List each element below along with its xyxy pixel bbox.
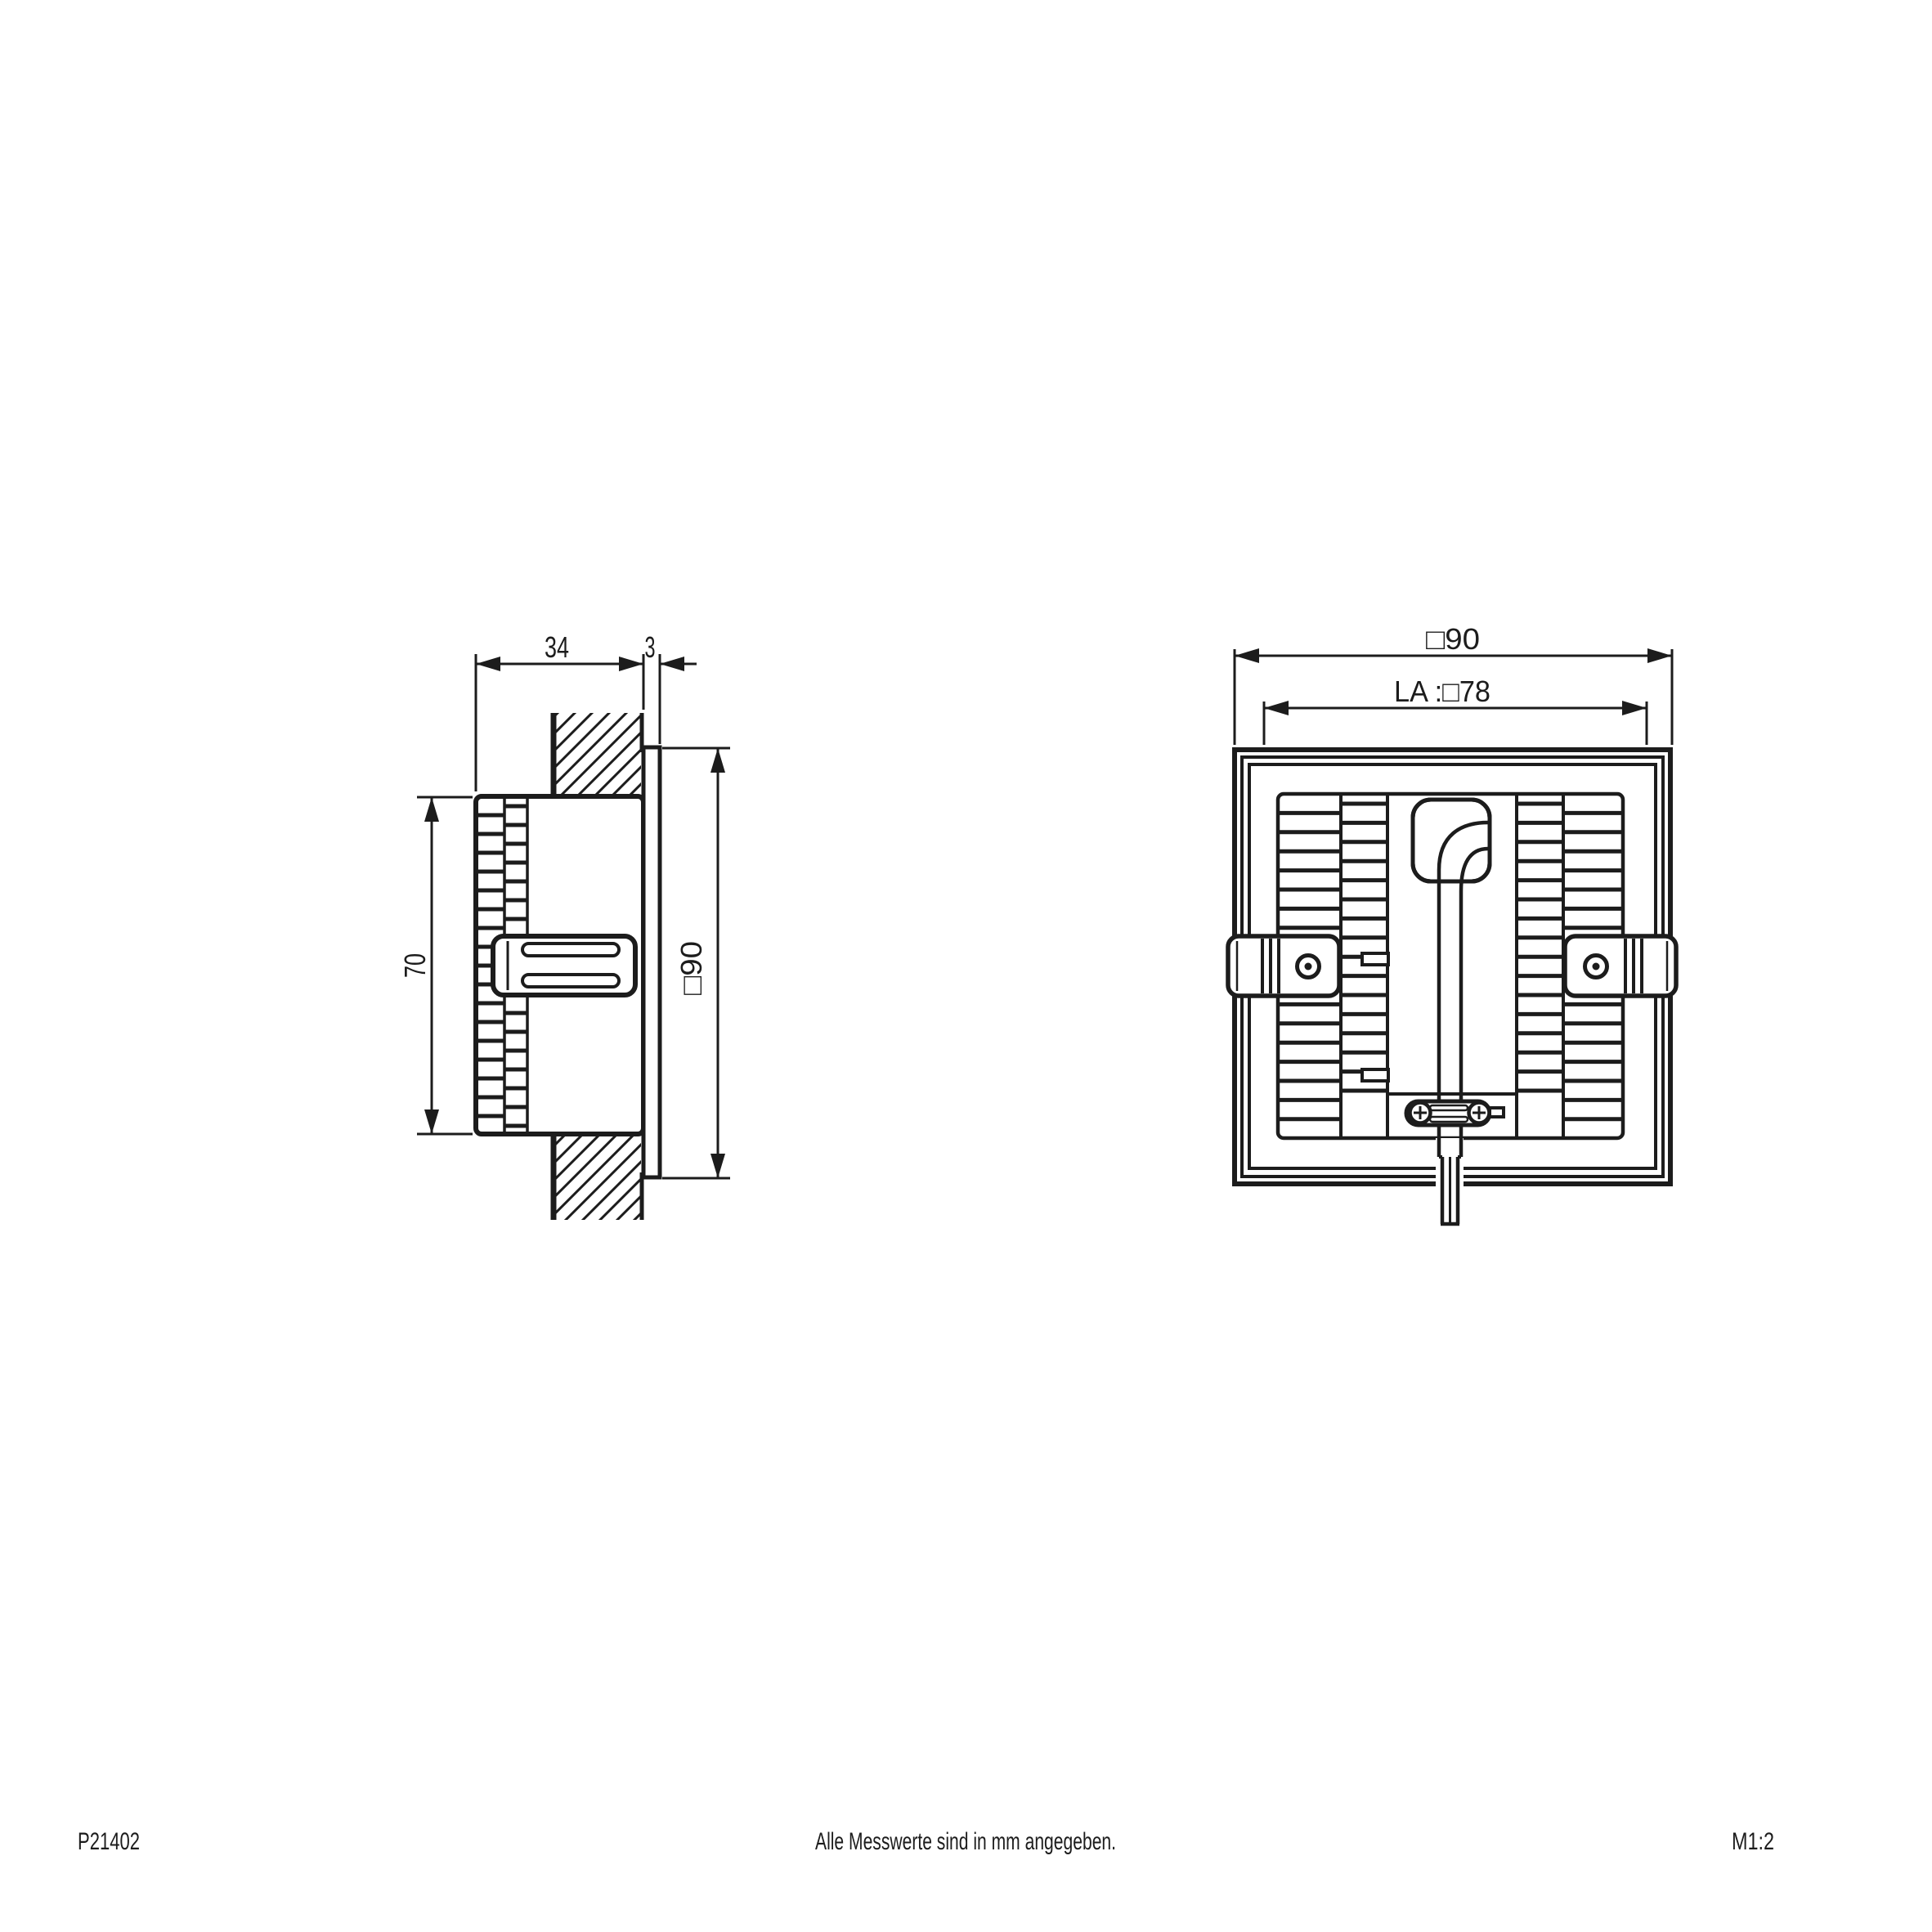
wall-section-top [553, 713, 642, 796]
spring-clip-left [1228, 936, 1339, 996]
drawing-scale: M1:2 [1732, 1828, 1774, 1855]
latch-notch [1362, 1069, 1388, 1081]
units-note: Alle Messwerte sind in mm angegeben. [815, 1828, 1116, 1855]
latch-notch [1362, 953, 1388, 965]
dim-label-height: 70 [398, 953, 432, 978]
spring-clip-side [493, 936, 635, 995]
clip-rivet-center [1593, 963, 1600, 970]
drawing-canvas: 34 3 70 □90 [0, 0, 1932, 1932]
drawing-number: P21402 [78, 1828, 140, 1855]
clamp-screw [1410, 1103, 1431, 1123]
cable-grommet [1413, 800, 1490, 881]
cable-clamp [1406, 1101, 1504, 1125]
clip-rivet-center [1305, 963, 1312, 970]
clip-slot [522, 944, 619, 956]
spring-clip-right [1565, 936, 1676, 996]
bezel-plate-section [643, 747, 660, 1177]
clip-slot [522, 975, 619, 987]
clamp-tab [1490, 1108, 1504, 1117]
dim-label-depth: 34 [545, 630, 569, 664]
dim-label-frame: 3 [645, 630, 656, 664]
dim-label-cutout: LA :□78 [1394, 675, 1490, 708]
dim-label-face-size: □90 [675, 941, 708, 995]
dim-label-outer-size: □90 [1426, 622, 1480, 656]
clamp-screw [1469, 1103, 1490, 1123]
wall-section-bottom [553, 1136, 642, 1220]
technical-drawing-page: 34 3 70 □90 [0, 0, 1932, 1932]
